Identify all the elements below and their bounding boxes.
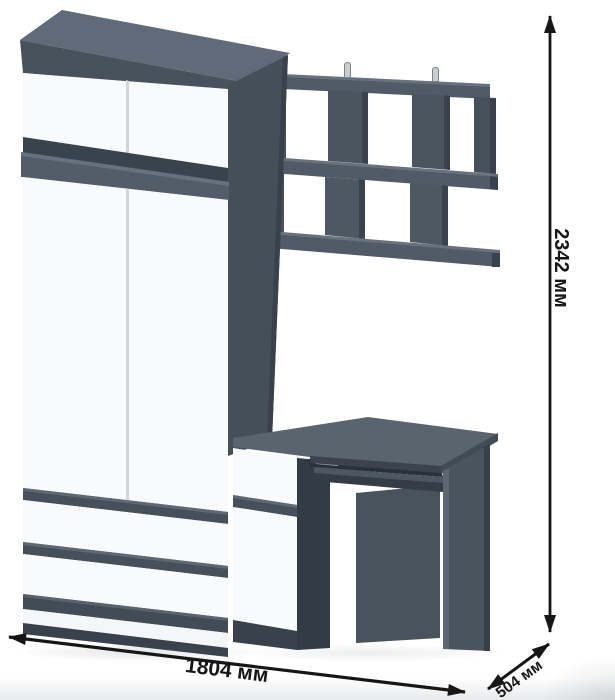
furniture-dimension-diagram: 2342 мм 1804 мм 504 мм xyxy=(0,0,615,700)
desk xyxy=(0,0,615,700)
desk-pedestal-side xyxy=(0,0,615,700)
